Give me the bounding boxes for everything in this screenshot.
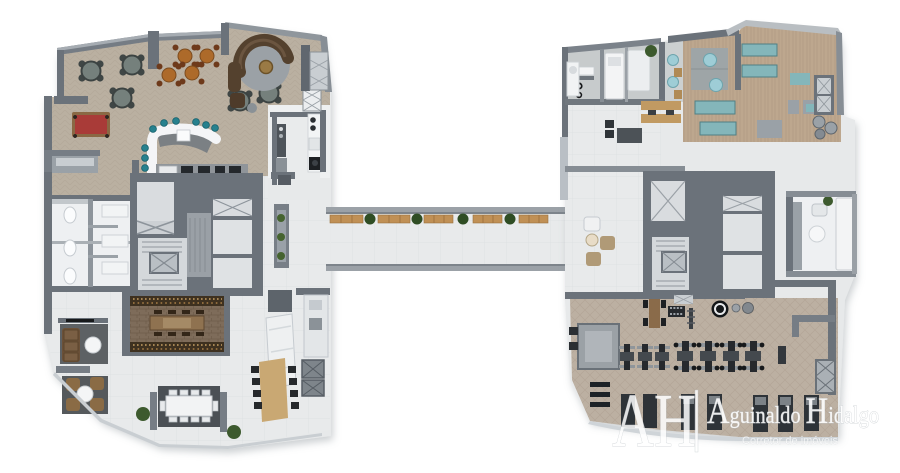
svg-text:Corretor de imóveis: Corretor de imóveis <box>742 435 838 447</box>
svg-text:AH: AH <box>612 379 696 463</box>
